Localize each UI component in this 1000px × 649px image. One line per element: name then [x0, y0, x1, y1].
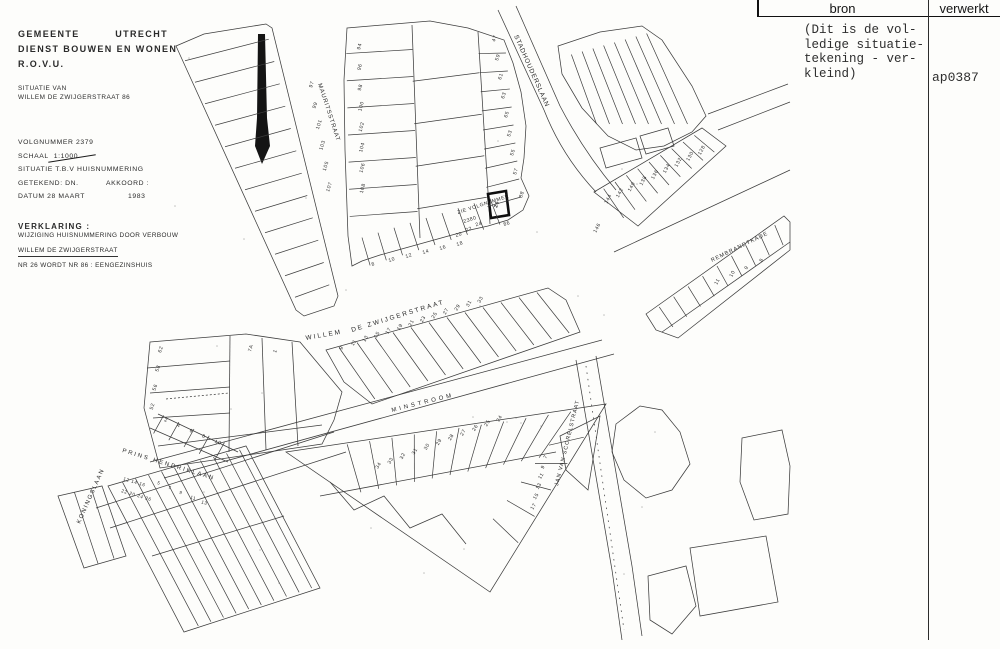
block-top-right	[558, 26, 706, 150]
plot-divider	[659, 307, 673, 327]
scan-noise-dot	[259, 549, 261, 551]
plot-number: 99	[312, 101, 320, 109]
plot-divider	[185, 39, 269, 61]
plot-divider	[703, 276, 715, 296]
plot-number: 30	[423, 442, 432, 451]
plot-divider	[215, 106, 285, 125]
plot-number: 31	[465, 299, 474, 308]
scan-noise-dot	[188, 57, 190, 59]
street-label-koningslaan: KONINGSLAAN	[76, 468, 106, 525]
scan-noise-dot	[577, 295, 579, 297]
scan-noise-dot	[641, 506, 643, 508]
plot-number: 128	[697, 144, 707, 156]
plot-number: 11	[713, 277, 721, 285]
plot-divider	[593, 49, 623, 125]
plot-number: 9	[339, 345, 346, 351]
plot-number: 63	[500, 91, 508, 99]
plot-number: 29	[435, 438, 444, 447]
plot-divider	[265, 218, 313, 233]
plot-divider	[413, 73, 480, 82]
plot-divider	[416, 156, 485, 167]
plot-number: 7A	[247, 344, 255, 353]
plot-number: 47	[491, 34, 499, 42]
plot-number: 15	[532, 492, 541, 501]
plot-divider	[493, 519, 518, 543]
plot-number: 34	[375, 461, 384, 470]
scan-noise-dot	[370, 527, 372, 529]
scan-noise-dot	[654, 431, 656, 433]
plot-number: 1	[272, 349, 279, 354]
plot-divider	[775, 225, 783, 245]
plot-number: 106	[359, 162, 367, 173]
street-label-willem: WILLEM	[305, 329, 343, 342]
plot-number: 104	[358, 142, 366, 153]
plot-number: 102	[358, 121, 366, 132]
plot-divider	[480, 71, 508, 73]
plot-number: 12	[123, 476, 130, 483]
plot-divider	[123, 482, 199, 626]
plot-divider	[162, 471, 237, 613]
block-willem-de-zwijgerstraat-south	[326, 288, 580, 404]
plot-number: 18	[456, 240, 464, 248]
plot-divider	[479, 53, 506, 54]
plot-divider	[255, 196, 307, 212]
plot-number: 22	[465, 226, 473, 234]
plot-number: 101	[315, 119, 324, 131]
street-edge	[708, 84, 788, 114]
scan-noise-dot	[621, 168, 623, 170]
scan-noise-dot	[203, 491, 205, 493]
plot-divider	[604, 46, 636, 125]
scan-noise-dot	[603, 314, 605, 316]
plot-divider	[240, 450, 312, 588]
plot-number: 31	[411, 447, 420, 456]
scan-noise-dot	[174, 205, 176, 207]
plot-divider	[275, 240, 318, 254]
plot-number: 142	[615, 187, 625, 199]
plot-divider	[201, 461, 274, 601]
plot-number: 26	[145, 495, 152, 502]
plot-number: 5	[157, 480, 162, 486]
block-top-right-annex	[600, 138, 642, 168]
scan-noise-dot	[497, 140, 499, 142]
plot-divider	[486, 179, 519, 187]
plot-divider	[465, 313, 499, 358]
plot-divider	[482, 107, 512, 111]
plot-divider	[503, 418, 526, 464]
plot-divider	[519, 298, 552, 340]
building-outline	[740, 430, 790, 520]
scan-noise-dot	[243, 238, 245, 240]
plot-number: 58	[154, 364, 162, 372]
scan-noise-dot	[345, 289, 347, 291]
generated-map-text: MAURITSSTRAATSTADHOUDERSLAANWILLEMDE ZWI…	[75, 34, 784, 626]
plot-divider	[486, 421, 504, 468]
block-m-row-line	[150, 387, 230, 393]
plot-number: 134	[662, 163, 672, 175]
block-m-column-line	[292, 342, 298, 446]
plot-number: 33	[477, 295, 486, 304]
plot-number: 108	[359, 183, 367, 194]
plot-divider	[447, 318, 481, 364]
plot-number: 146	[592, 222, 602, 234]
plot-divider	[347, 77, 413, 81]
block-willem-de-zwijgerstraat-north	[344, 21, 529, 266]
plot-divider	[485, 161, 517, 168]
plot-divider	[357, 343, 393, 394]
plot-number: 100	[357, 101, 365, 112]
plot-number: 21	[408, 319, 417, 328]
plot-number: 65	[503, 110, 511, 118]
scan-noise-dot	[278, 582, 280, 584]
plot-number: 13	[201, 499, 208, 506]
plot-number: 107	[325, 181, 334, 193]
plot-divider	[188, 464, 262, 605]
scan-noise-dot	[261, 392, 263, 394]
street-prins-hendriklaan-edge	[110, 452, 346, 528]
plot-number: 22	[121, 488, 128, 495]
plot-number: 94	[356, 42, 364, 50]
plot-number: 61	[497, 72, 505, 80]
plot-number: 26	[471, 424, 480, 433]
street-jan-van-scorelstraat-edge	[596, 356, 642, 636]
plot-number: 8	[371, 261, 376, 268]
scan-noise-dot	[216, 345, 218, 347]
plot-number: 32	[399, 452, 408, 461]
plot-number: 29	[454, 303, 463, 312]
scan-noise-dot	[479, 305, 481, 307]
building-outline	[612, 406, 690, 498]
plot-divider	[362, 238, 370, 266]
plot-number: 10	[388, 256, 396, 264]
plot-divider	[674, 297, 687, 317]
plot-number: 14	[131, 479, 138, 486]
block-m-dashed-line	[166, 393, 229, 399]
plot-divider	[149, 475, 224, 618]
plot-divider	[483, 125, 514, 130]
plot-divider	[378, 233, 386, 261]
plot-number: 88	[518, 190, 526, 198]
plot-number: 13	[535, 482, 544, 491]
building-outline	[690, 536, 778, 616]
plot-divider	[647, 34, 688, 125]
scan-noise-dot	[506, 421, 508, 423]
plot-number: 53	[506, 129, 514, 137]
plot-divider	[205, 84, 280, 104]
plot-number: 136	[650, 169, 660, 181]
scan-noise-dot	[463, 548, 465, 550]
block-m-column-line	[229, 336, 230, 452]
plot-number: 57	[512, 167, 520, 175]
plot-divider	[393, 333, 428, 382]
plot-number: 28	[447, 433, 456, 442]
plot-divider	[347, 444, 361, 492]
plot-divider	[175, 468, 249, 609]
plot-number: 55	[509, 148, 517, 156]
plot-number: 144	[603, 193, 613, 205]
block-rembrandtkade-north	[594, 128, 726, 226]
plot-divider	[571, 55, 596, 125]
street-label-minstroom: MINSTROOM	[391, 393, 455, 414]
plot-number: 9	[743, 265, 750, 271]
block-b-column-line	[412, 25, 420, 238]
scanned-situation-drawing: GEMEENTE UTRECHT DIENST BOUWEN EN WONEN …	[0, 0, 1000, 649]
plot-number: 17	[385, 327, 394, 336]
plot-divider	[411, 328, 446, 376]
block-bottom-left	[108, 446, 320, 632]
plot-number: 103	[318, 140, 327, 152]
plot-divider	[375, 338, 410, 388]
plot-number: 4	[176, 423, 181, 430]
plot-divider	[285, 263, 324, 276]
plot-number: 7	[543, 454, 550, 460]
plot-number: 11	[350, 339, 358, 348]
zie-volgnummer-annotation: ZIE VOLGNUMMER	[457, 194, 510, 216]
block-triangle-texture	[330, 482, 466, 544]
building-outline	[648, 566, 696, 634]
scan-noise-dot	[230, 408, 232, 410]
plot-number: 19	[396, 323, 405, 332]
scan-noise-dot	[636, 183, 638, 185]
plot-divider	[483, 308, 516, 352]
scan-noise-dot	[520, 422, 522, 424]
scan-noise-dot	[305, 197, 307, 199]
plot-number: 96	[357, 63, 365, 71]
plot-divider	[295, 285, 329, 297]
block-top-right-annex	[640, 128, 674, 154]
plot-number: 98	[357, 83, 365, 91]
plot-number: 2	[163, 417, 168, 424]
situation-map: MAURITSSTRAATSTADHOUDERSLAANWILLEMDE ZWI…	[0, 0, 1000, 649]
plot-number: 9	[540, 464, 547, 470]
plot-number: 56	[152, 383, 160, 391]
scan-noise-dot	[515, 417, 517, 419]
plot-divider	[501, 303, 534, 346]
plot-divider	[245, 173, 302, 190]
plot-divider	[429, 323, 463, 370]
plot-number: 10	[214, 439, 222, 447]
plot-divider	[746, 246, 756, 266]
plot-number: 10	[728, 270, 736, 279]
highlight-plot-new-number: 86	[503, 220, 511, 228]
plot-divider	[582, 52, 609, 125]
scan-noise-dot	[623, 573, 625, 575]
street-label-mauritsstraat: MAURITSSTRAAT	[316, 83, 340, 143]
plot-divider	[339, 348, 375, 400]
plot-divider	[227, 453, 300, 592]
street-jan-van-scorelstraat-edge	[576, 360, 622, 640]
plot-number: 97	[308, 80, 316, 88]
plot-divider	[350, 212, 418, 217]
scan-noise-dot	[472, 416, 474, 418]
plot-divider	[481, 89, 510, 92]
plot-divider	[432, 431, 436, 478]
plot-divider	[688, 286, 700, 306]
plot-divider	[214, 457, 287, 597]
scan-noise-dot	[423, 572, 425, 574]
block-mauritsstraat-west	[176, 24, 338, 316]
black-survey-mark	[255, 34, 270, 164]
plot-number: 15	[373, 330, 382, 339]
plot-number: 23	[419, 315, 428, 324]
street-curve	[544, 110, 596, 192]
plot-divider	[442, 213, 451, 240]
scan-noise-dot	[540, 425, 542, 427]
plot-number: 13	[362, 334, 371, 343]
block-m-sub-line	[158, 414, 238, 452]
plot-number: 25	[483, 419, 492, 428]
plot-number: 12	[405, 252, 413, 260]
plot-number: 16	[439, 244, 447, 252]
plot-number: 62	[157, 345, 165, 353]
plot-number: 24	[137, 493, 144, 500]
scan-noise-dot	[536, 231, 538, 233]
plot-number: 9	[179, 490, 184, 496]
plot-number: 27	[459, 428, 468, 437]
plot-number: 17	[530, 502, 539, 511]
plot-number: 8	[758, 257, 765, 263]
plot-divider	[92, 490, 115, 559]
block-m-column-line	[262, 338, 266, 450]
plot-number: 132	[674, 157, 684, 169]
plot-number: 27	[442, 307, 451, 316]
plot-number: 11	[537, 472, 545, 481]
plot-number: 14	[422, 248, 430, 256]
plot-divider	[349, 158, 416, 163]
scan-noise-dot	[488, 204, 490, 206]
plot-number: 59	[494, 53, 502, 61]
plot-number: 52	[149, 402, 157, 410]
plot-number: 105	[322, 160, 331, 172]
plot-divider	[414, 114, 482, 124]
plot-number: 24	[496, 414, 505, 423]
plot-divider	[346, 50, 412, 54]
